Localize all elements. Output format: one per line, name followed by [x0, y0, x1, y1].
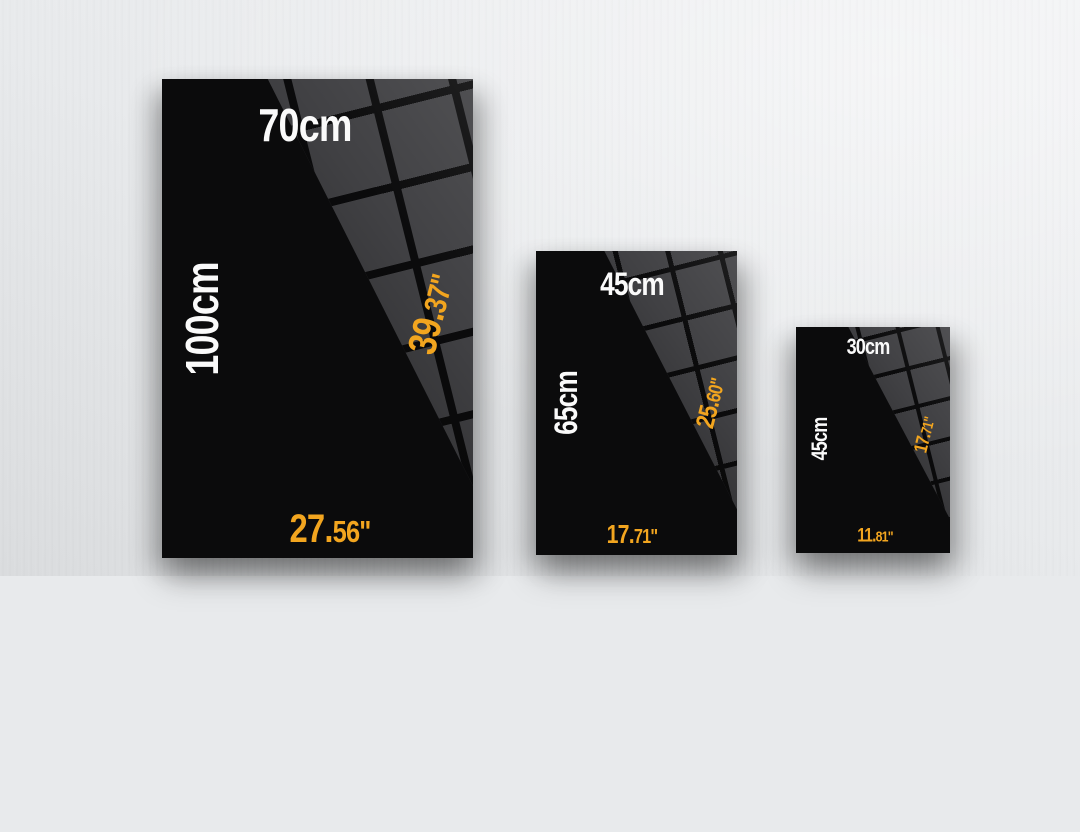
window-grid-pattern	[679, 196, 1067, 683]
width-inches-main: 17.	[607, 519, 634, 549]
poster-30x45cm: 30cm 45cm 17.71" 11.81"	[796, 327, 950, 553]
width-inches-label: 11.81"	[857, 527, 892, 546]
width-inches-suffix: 56"	[333, 514, 371, 549]
width-inches-main: 27.	[289, 507, 332, 551]
width-inches-main: 11.	[857, 526, 875, 547]
width-cm-label: 45cm	[601, 268, 665, 300]
width-cm-label: 30cm	[847, 336, 890, 358]
height-cm-label: 100cm	[179, 262, 225, 375]
height-cm-label: 65cm	[550, 371, 582, 435]
poster-70x100cm: 70cm 100cm 39.37" 27.56"	[162, 79, 473, 558]
width-inches-label: 27.56"	[289, 509, 370, 549]
width-inches-label: 17.71"	[607, 521, 658, 547]
width-cm-label: 70cm	[258, 102, 351, 148]
height-cm-label: 45cm	[809, 417, 831, 460]
wall-background: 70cm 100cm 39.37" 27.56" 45cm 65cm 25.60…	[0, 0, 1080, 576]
poster-45x65cm: 45cm 65cm 25.60" 17.71"	[536, 251, 737, 555]
width-inches-suffix: 81"	[875, 529, 892, 546]
width-inches-suffix: 71"	[634, 526, 658, 548]
